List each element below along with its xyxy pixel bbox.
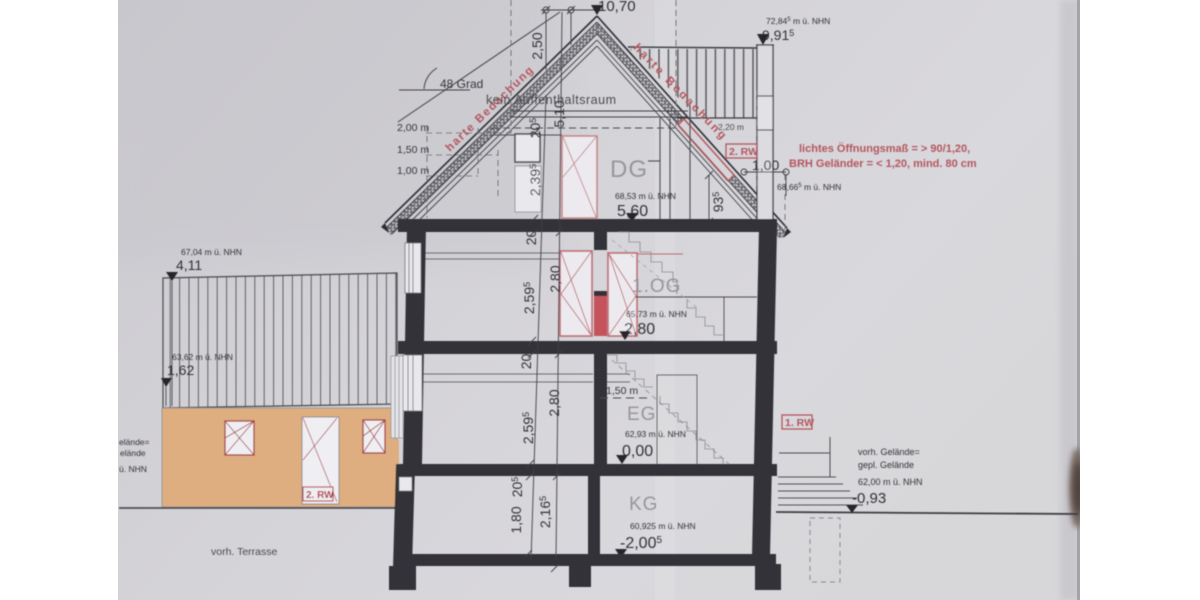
svg-text:2,80: 2,80: [546, 389, 562, 416]
svg-text:2,80: 2,80: [547, 265, 563, 292]
svg-text:60,925 m ü. NHN: 60,925 m ü. NHN: [630, 521, 696, 531]
svg-text:1,00 m: 1,00 m: [397, 165, 429, 177]
svg-text:0,00: 0,00: [622, 443, 653, 460]
svg-text:67,04 m ü. NHN: 67,04 m ü. NHN: [181, 247, 242, 257]
svg-text:-0,93: -0,93: [852, 490, 886, 507]
svg-text:1,62: 1,62: [167, 362, 194, 378]
svg-text:elände: elände: [120, 448, 146, 458]
svg-text:62,93 m ü. NHN: 62,93 m ü. NHN: [625, 429, 686, 439]
svg-text:2. RW: 2. RW: [306, 490, 334, 501]
svg-text:10,70: 10,70: [598, 0, 636, 15]
svg-text:1,50 m: 1,50 m: [606, 385, 638, 397]
svg-text:vorh. Gelände=: vorh. Gelände=: [858, 447, 920, 457]
svg-text:68,53 m ü. NHN: 68,53 m ü. NHN: [615, 191, 676, 201]
svg-text:72,845 m ü. NHN: 72,845 m ü. NHN: [766, 16, 830, 26]
svg-text:2,80: 2,80: [624, 321, 655, 338]
svg-text:lichtes Öffnungsmaß = > 90/1,2: lichtes Öffnungsmaß = > 90/1,20,: [799, 142, 970, 155]
svg-text:4,11: 4,11: [176, 257, 202, 273]
svg-text:65,73 m ü. NHN: 65,73 m ü. NHN: [626, 309, 687, 319]
svg-text:63,62 m ü. NHN: 63,62 m ü. NHN: [172, 352, 233, 362]
svg-text:DG: DG: [610, 156, 648, 183]
svg-text:2,00 m: 2,00 m: [397, 122, 429, 134]
svg-text:1. RW: 1. RW: [785, 417, 814, 429]
svg-text:1,80: 1,80: [508, 506, 524, 533]
svg-text:KG: KG: [629, 494, 658, 515]
svg-text:68,665 m ü. NHN: 68,665 m ü. NHN: [777, 182, 841, 192]
svg-text:kein Auffenthaltsraum: kein Auffenthaltsraum: [486, 93, 616, 107]
svg-text:EG: EG: [627, 404, 656, 425]
svg-text:gepl. Gelände: gepl. Gelände: [858, 460, 914, 470]
svg-text:62,00 m ü. NHN: 62,00 m ü. NHN: [858, 477, 923, 487]
svg-text:1,50 m: 1,50 m: [397, 144, 429, 156]
svg-text:vorh. Terrasse: vorh. Terrasse: [211, 546, 277, 558]
svg-text:2. RW: 2. RW: [729, 146, 758, 158]
svg-text:1.OG: 1.OG: [632, 276, 681, 297]
svg-text:elände=: elände=: [119, 437, 150, 447]
svg-text:ü. NHN: ü. NHN: [119, 464, 147, 474]
svg-text:BRH Geländer = < 1,20, mind. 8: BRH Geländer = < 1,20, mind. 80 cm: [789, 158, 977, 170]
svg-text:1,00: 1,00: [752, 157, 779, 173]
svg-text:2,50: 2,50: [529, 32, 545, 59]
